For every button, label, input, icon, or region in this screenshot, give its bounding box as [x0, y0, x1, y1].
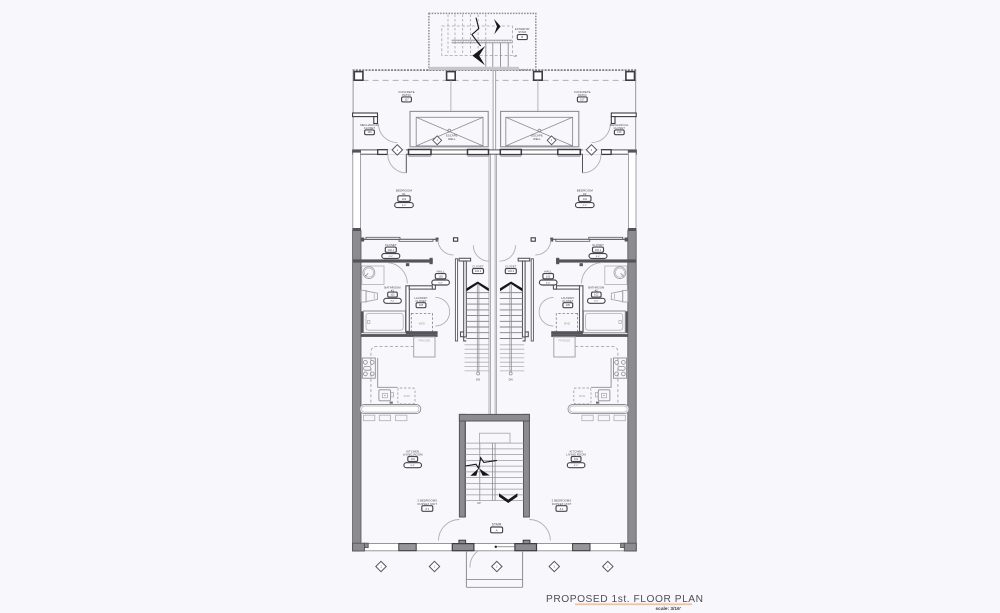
svg-text:UP: UP — [514, 55, 518, 58]
svg-text:ESCAPE: ESCAPE — [446, 133, 458, 137]
svg-text:# 1: # 1 — [425, 507, 429, 511]
svg-text:CLOSET: CLOSET — [385, 243, 397, 247]
svg-text:DN: DN — [476, 377, 480, 381]
svg-text:WELL: WELL — [533, 137, 541, 141]
svg-text:FRIDGE: FRIDGE — [559, 339, 571, 343]
svg-text:8'-0": 8'-0" — [390, 301, 395, 303]
svg-text:FRIDGE: FRIDGE — [418, 339, 430, 343]
svg-text:ESCAPE: ESCAPE — [531, 133, 543, 137]
svg-text:D/W: D/W — [404, 394, 410, 398]
svg-text:scale: 3/16': scale: 3/16' — [656, 606, 681, 612]
svg-text:101: 101 — [574, 457, 579, 461]
svg-text:107: 107 — [404, 97, 409, 101]
svg-text:W/D: W/D — [419, 321, 426, 325]
svg-text:STAIR: STAIR — [518, 30, 526, 34]
svg-text:HALL: HALL — [544, 270, 552, 274]
svg-text:102: 102 — [594, 293, 599, 297]
svg-text:CLOSET: CLOSET — [592, 243, 604, 247]
svg-text:A: A — [496, 528, 498, 532]
svg-text:104.1: 104.1 — [595, 248, 602, 252]
svg-text:PROPOSED 1st. FLOOR PLAN: PROPOSED 1st. FLOOR PLAN — [546, 594, 704, 605]
svg-text:STAIR: STAIR — [492, 522, 502, 526]
svg-text:8'-0": 8'-0" — [411, 465, 416, 467]
svg-text:105: 105 — [419, 303, 424, 307]
svg-text:# 2: # 2 — [560, 507, 564, 511]
svg-text:104.1: 104.1 — [388, 248, 395, 252]
svg-text:UP: UP — [477, 501, 481, 505]
svg-text:#1: #1 — [402, 192, 406, 196]
svg-text:106: 106 — [617, 130, 622, 134]
svg-text:8'-0": 8'-0" — [546, 282, 551, 284]
svg-text:104.2: 104.2 — [508, 269, 515, 273]
svg-text:8'-0": 8'-0" — [596, 256, 601, 258]
svg-text:102: 102 — [390, 293, 395, 297]
svg-text:WELL: WELL — [448, 137, 456, 141]
svg-text:CLOSET: CLOSET — [472, 265, 484, 269]
svg-text:D/W: D/W — [579, 394, 585, 398]
svg-text:107: 107 — [580, 97, 585, 101]
svg-text:#2: #2 — [583, 192, 587, 196]
svg-text:101: 101 — [411, 457, 416, 461]
svg-text:106: 106 — [367, 130, 372, 134]
svg-text:8'-0": 8'-0" — [594, 301, 599, 303]
svg-text:8'-0": 8'-0" — [402, 205, 407, 207]
svg-text:104: 104 — [402, 197, 407, 201]
svg-text:8'-0": 8'-0" — [438, 282, 443, 284]
svg-text:103: 103 — [438, 274, 443, 278]
svg-text:104: 104 — [583, 197, 588, 201]
svg-text:HALL: HALL — [437, 270, 445, 274]
svg-text:8'-0": 8'-0" — [574, 465, 579, 467]
svg-text:103: 103 — [546, 274, 551, 278]
svg-text:DN: DN — [509, 377, 513, 381]
svg-text:W/D: W/D — [564, 321, 571, 325]
svg-text:8'-0": 8'-0" — [583, 205, 588, 207]
svg-text:B: B — [521, 35, 523, 39]
svg-text:8'-0": 8'-0" — [389, 256, 394, 258]
svg-text:105: 105 — [566, 303, 571, 307]
svg-text:CLOSET: CLOSET — [505, 265, 517, 269]
svg-text:104.2: 104.2 — [475, 269, 482, 273]
